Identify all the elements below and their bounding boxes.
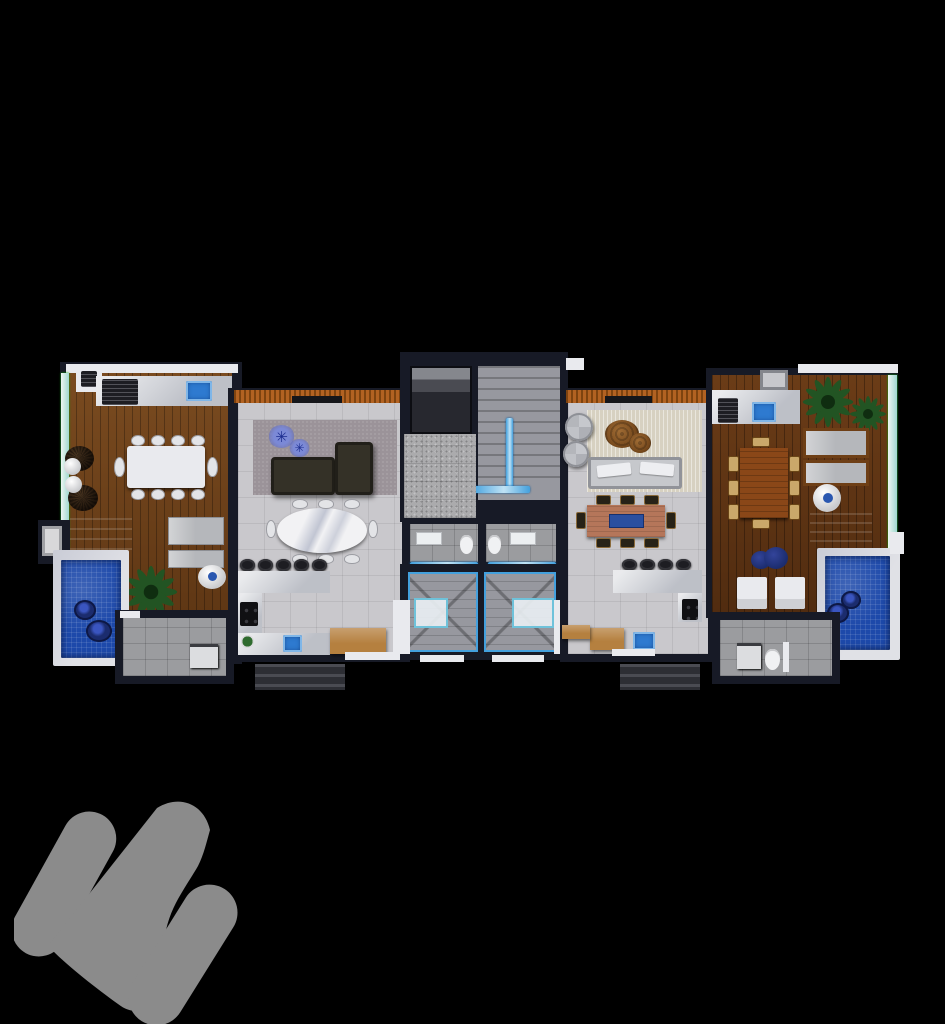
- dining-chair: [344, 554, 360, 564]
- round-armchair: [565, 413, 593, 441]
- dining-chair: [576, 512, 586, 529]
- terrace-chair: [728, 480, 739, 496]
- core-hall-floor: [404, 434, 476, 518]
- core-threshold: [420, 655, 464, 662]
- table-runner: [610, 515, 643, 527]
- common-stair: [478, 366, 560, 484]
- towel-decor: [823, 493, 833, 503]
- left-kitchen-sink: [283, 635, 302, 652]
- sun-lounger: [803, 428, 869, 458]
- dining-chair: [596, 538, 611, 548]
- right-kitchen-cabinet: [562, 625, 590, 639]
- terrace-chair: [171, 435, 185, 446]
- left-corner-vent-grate-icon: [81, 371, 97, 387]
- terrace-chair: [752, 437, 770, 447]
- bar-stool: [240, 559, 255, 571]
- round-wood-decor: [629, 433, 651, 453]
- right-terrace-glass-rail: [888, 375, 897, 557]
- terrace-chair: [207, 457, 218, 477]
- right-kitchen-cabinet: [590, 628, 624, 650]
- terrace-chair: [789, 456, 800, 472]
- dining-chair: [620, 495, 635, 505]
- pool-float: [86, 620, 112, 642]
- deck-steps: [810, 513, 872, 548]
- dining-chair: [318, 499, 334, 509]
- company-logo-watermark: [14, 792, 244, 1024]
- left-terrace-table: [127, 446, 205, 488]
- left-kitchen-cabinet: [330, 628, 386, 654]
- terrace-chair: [191, 435, 205, 446]
- sun-lounger: [803, 460, 869, 486]
- round-side-table: [64, 458, 81, 475]
- left-bbq-grill-icon: [102, 379, 138, 405]
- round-side-table: [65, 476, 82, 493]
- right-pool-stub: [890, 532, 904, 554]
- terrace-chair: [752, 519, 770, 529]
- dining-chair: [596, 495, 611, 505]
- right-terrace-sink: [752, 402, 776, 422]
- pool-lounge-chair: [775, 577, 805, 609]
- terrace-chair: [191, 489, 205, 500]
- glass-balustrade: [414, 598, 448, 628]
- dining-chair: [620, 538, 635, 548]
- terrace-chair: [728, 504, 739, 520]
- table-decor: [208, 572, 217, 581]
- left-oval-dining-table: [277, 508, 367, 553]
- right-kitchen-bar: [613, 570, 702, 593]
- dining-chair: [644, 538, 659, 548]
- right-unit-threshold: [612, 649, 655, 656]
- dining-chair: [644, 495, 659, 505]
- terrace-chair: [151, 435, 165, 446]
- right-entry-steps: [620, 664, 700, 690]
- cooktop: [240, 602, 258, 626]
- bar-stool: [658, 559, 673, 570]
- right-ac-box: [760, 370, 788, 390]
- elevator: [410, 366, 472, 434]
- stair-glass-railing: [472, 486, 530, 493]
- sun-lounger: [168, 517, 224, 545]
- terrace-chair: [728, 456, 739, 472]
- navy-pouf: [764, 547, 788, 569]
- round-armchair: [563, 441, 589, 467]
- terrace-chair: [789, 504, 800, 520]
- flower-glyph: ✳: [294, 441, 304, 455]
- stair-glass-railing: [506, 418, 513, 492]
- terrace-chair: [789, 480, 800, 496]
- left-sofa-main: [271, 457, 335, 495]
- terrace-chair: [171, 489, 185, 500]
- toilet: [460, 535, 473, 554]
- pool-lounge-chair: [737, 577, 767, 609]
- right-tv-panel: [605, 396, 652, 403]
- bar-stool: [622, 559, 637, 570]
- core-threshold: [492, 655, 544, 662]
- shower-partition: [783, 642, 789, 672]
- dining-chair: [666, 512, 676, 529]
- dining-chair: [266, 520, 276, 538]
- dining-chair: [292, 499, 308, 509]
- washer: [190, 644, 218, 668]
- cooktop: [682, 599, 698, 620]
- bar-stool: [676, 559, 691, 570]
- lavatory-sink: [510, 532, 536, 545]
- pool-float: [74, 600, 96, 620]
- left-sofa-chaise: [335, 442, 373, 495]
- dining-chair: [368, 520, 378, 538]
- terrace-chair: [131, 435, 145, 446]
- toilet: [765, 649, 780, 670]
- bar-stool: [312, 559, 327, 571]
- bar-stool: [294, 559, 309, 571]
- flower-glyph: ✳: [275, 428, 288, 446]
- lavatory-sink: [416, 532, 442, 545]
- toilet: [488, 535, 501, 554]
- right-bbq-grill-icon: [718, 398, 738, 423]
- left-tv-panel: [292, 396, 342, 403]
- left-unit-threshold: [345, 652, 400, 660]
- bathroom-cabinet: [737, 643, 761, 669]
- right-terrace-table: [740, 448, 788, 518]
- right-terrace-parapet: [798, 364, 898, 373]
- core-top-stub: [566, 358, 584, 370]
- floor-plan: ✳ ✳: [52, 348, 897, 700]
- terrace-chair: [131, 489, 145, 500]
- glass-balustrade: [512, 598, 554, 628]
- terrace-chair: [114, 457, 125, 477]
- left-terrace-sink: [186, 381, 212, 401]
- bar-stool: [640, 559, 655, 570]
- right-kitchen-sink: [633, 632, 655, 650]
- left-service-door: [120, 611, 140, 618]
- terrace-chair: [151, 489, 165, 500]
- left-kitchen-bar: [238, 571, 330, 593]
- left-entry-steps: [255, 664, 345, 690]
- stair-side-wall: [393, 600, 410, 654]
- plant-pot: [241, 635, 254, 648]
- dining-chair: [344, 499, 360, 509]
- bar-stool: [276, 559, 291, 571]
- canvas: ✳ ✳: [0, 0, 945, 1024]
- flower-rug-decor-icon: ✳: [289, 439, 310, 457]
- bar-stool: [258, 559, 273, 571]
